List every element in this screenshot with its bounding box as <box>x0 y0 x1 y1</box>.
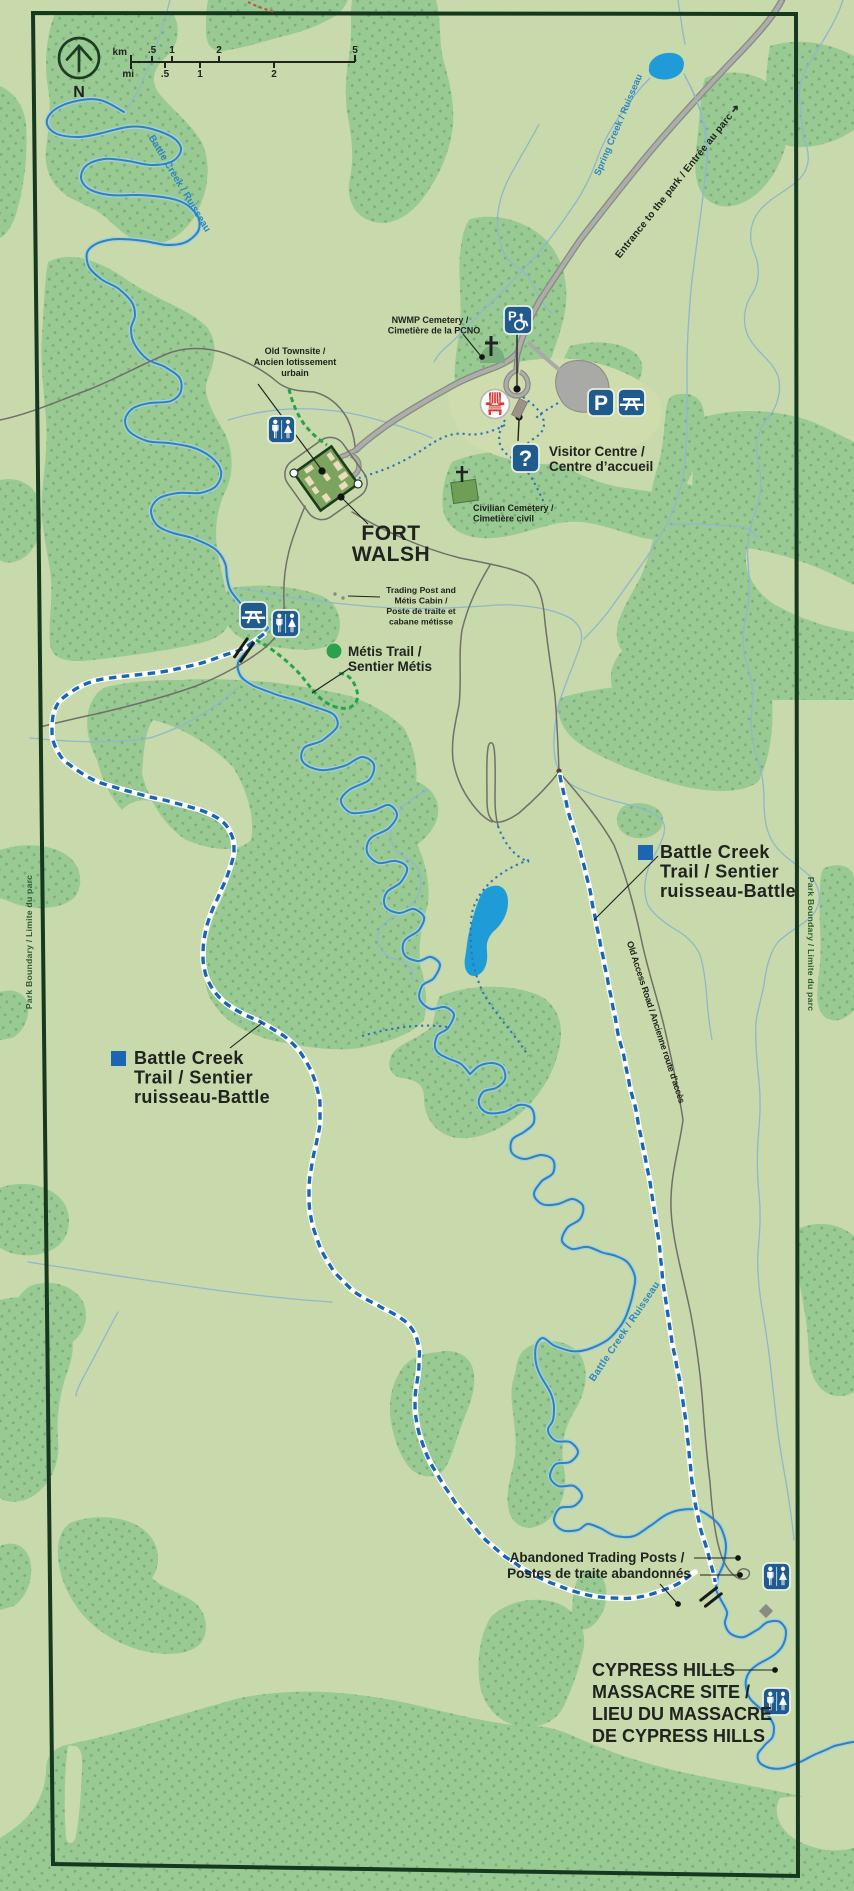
svg-text:.5: .5 <box>161 69 170 80</box>
svg-text:WALSH: WALSH <box>352 543 430 566</box>
svg-text:Trail / Sentier: Trail / Sentier <box>660 862 779 882</box>
svg-text:Civilian Cemetery /: Civilian Cemetery / <box>473 503 554 513</box>
svg-text:Visitor Centre /: Visitor Centre / <box>549 444 645 459</box>
svg-text:1: 1 <box>197 69 203 80</box>
svg-text:ruisseau-Battle: ruisseau-Battle <box>134 1087 270 1107</box>
svg-text:Sentier Métis: Sentier Métis <box>348 659 432 674</box>
svg-text:urbain: urbain <box>281 368 309 378</box>
svg-text:Abandoned Trading Posts /: Abandoned Trading Posts / <box>510 1550 685 1565</box>
svg-text:Métis Trail /: Métis Trail / <box>348 644 422 659</box>
svg-text:FORT: FORT <box>361 522 420 545</box>
svg-text:Postes de traite abandonnés: Postes de traite abandonnés <box>507 1566 691 1581</box>
svg-text:Old Townsite /: Old Townsite / <box>265 346 326 356</box>
svg-text:Cimetière civil: Cimetière civil <box>473 514 534 524</box>
svg-text:CYPRESS HILLS: CYPRESS HILLS <box>592 1660 735 1680</box>
svg-text:km: km <box>113 47 128 58</box>
svg-text:.5: .5 <box>148 45 157 56</box>
svg-text:Trading Post and: Trading Post and <box>386 585 456 595</box>
svg-text:Ancien lotissement: Ancien lotissement <box>254 357 337 367</box>
svg-text:N: N <box>73 84 85 101</box>
svg-text:1: 1 <box>169 45 175 56</box>
svg-text:mi: mi <box>122 69 134 80</box>
svg-text:Métis Cabin /: Métis Cabin / <box>394 596 448 606</box>
svg-text:Battle Creek: Battle Creek <box>134 1048 244 1068</box>
svg-text:Centre d’accueil: Centre d’accueil <box>549 459 653 474</box>
svg-text:MASSACRE SITE /: MASSACRE SITE / <box>592 1682 750 1702</box>
svg-text:2: 2 <box>271 69 277 80</box>
svg-text:Poste de traite et: Poste de traite et <box>386 606 455 616</box>
svg-text:Trail / Sentier: Trail / Sentier <box>134 1068 253 1088</box>
svg-text:2: 2 <box>216 45 222 56</box>
svg-text:cabane métisse: cabane métisse <box>389 617 453 627</box>
svg-text:Battle Creek: Battle Creek <box>660 842 770 862</box>
svg-text:NWMP Cemetery /: NWMP Cemetery / <box>392 315 469 325</box>
svg-text:DE CYPRESS HILLS: DE CYPRESS HILLS <box>592 1726 765 1746</box>
svg-text:Cimetière de la PCNO: Cimetière de la PCNO <box>388 326 481 336</box>
svg-text:5: 5 <box>352 45 358 56</box>
svg-text:Park Boundary / Limite du parc: Park Boundary / Limite du parc <box>24 875 34 1009</box>
svg-text:Park Boundary / Limite du parc: Park Boundary / Limite du parc <box>806 877 816 1011</box>
svg-text:ruisseau-Battle: ruisseau-Battle <box>660 881 796 901</box>
svg-text:LIEU DU MASSACRE: LIEU DU MASSACRE <box>592 1704 772 1724</box>
